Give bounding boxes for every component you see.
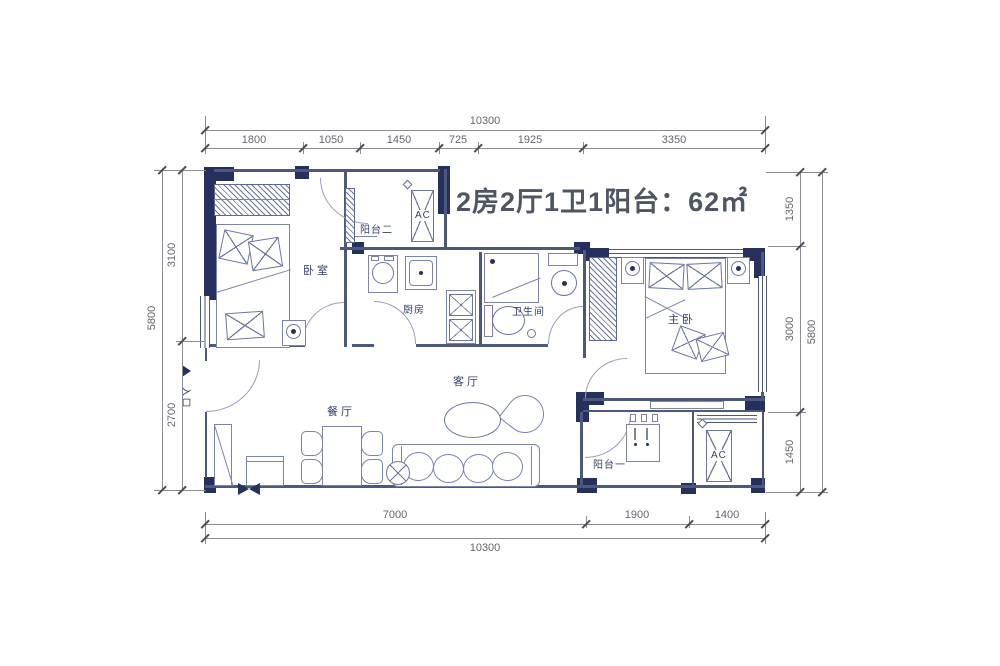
bathroom-shower-head xyxy=(490,259,495,264)
kitchen-washer-drum xyxy=(372,262,394,284)
wall-bathroom-right xyxy=(583,250,586,358)
dining-label: 餐厅 xyxy=(327,403,355,419)
dining-chair-3 xyxy=(361,431,383,456)
dim-line-top-segments xyxy=(205,148,765,149)
entrance-door-arc xyxy=(206,360,260,412)
dim-left-total: 5800 xyxy=(146,306,158,330)
ac-top-diamond-icon xyxy=(403,180,413,190)
floor-plan-canvas: 2房2厅1卫1阳台：62㎡ 入口 xyxy=(0,0,1000,666)
dim-line-bottom-segments xyxy=(205,524,765,525)
balcony2-side-vent xyxy=(345,188,355,243)
dim-right-3000: 3000 xyxy=(784,317,796,341)
living-floor-lamp xyxy=(386,461,410,485)
master-pillow-2 xyxy=(686,262,722,290)
ac-top-label: AC xyxy=(414,210,432,221)
balcony2-sill xyxy=(355,236,377,237)
dining-chair-2 xyxy=(301,459,323,484)
master-lamp-right-dot xyxy=(736,266,741,271)
dim-ext-bottom-right xyxy=(765,512,766,544)
bedroom-label: 卧室 xyxy=(303,262,331,278)
window-master-right xyxy=(758,276,767,392)
heater-mark-1 xyxy=(634,428,636,440)
dim-top-total: 10300 xyxy=(470,115,501,127)
master-door-arc xyxy=(585,358,627,398)
wall-kitchen-left xyxy=(344,250,347,347)
balcony1-label: 阳台一 xyxy=(593,456,626,471)
dining-chair-4 xyxy=(361,459,383,484)
living-armchair xyxy=(498,387,551,440)
living-label: 客厅 xyxy=(453,373,481,389)
bathroom-door-arc xyxy=(548,306,583,344)
wall-kitchen-bath-top xyxy=(340,247,580,250)
master-wardrobe xyxy=(589,257,617,341)
ac-bottom-label: AC xyxy=(710,450,728,461)
kitchen-label: 厨房 xyxy=(403,301,425,316)
heater-dot-2 xyxy=(646,443,649,446)
dim-line-bottom-total xyxy=(205,538,765,539)
kitchen-washer-tap-1 xyxy=(371,256,379,261)
dining-cabinet-line xyxy=(246,461,284,462)
dim-right-total: 5800 xyxy=(806,320,818,344)
dining-table xyxy=(322,426,362,486)
dim-ext-bottom-left xyxy=(205,512,206,544)
entrance-arrow-icon xyxy=(182,365,191,377)
bathroom-floor-drain xyxy=(527,329,536,338)
wall-left-lower xyxy=(205,412,207,478)
dining-chair-1 xyxy=(301,431,323,456)
dim-top-1050: 1050 xyxy=(319,134,343,146)
bedroom-foot-pillow xyxy=(225,311,265,341)
bedroom-lamp-dot xyxy=(291,329,296,334)
dim-top-3350: 3350 xyxy=(662,134,686,146)
dim-line-top-total xyxy=(205,130,765,131)
balcony1-water-heater xyxy=(626,424,660,462)
kitchen-washer-tap-2 xyxy=(384,256,394,261)
bedroom-wardrobe-divider xyxy=(214,199,290,200)
wall-bottom-balcony1 xyxy=(580,485,765,488)
balcony1-door-arc xyxy=(585,414,631,458)
bedroom-wardrobe xyxy=(214,184,290,216)
living-coffee-table xyxy=(444,402,501,438)
wall-zone-right xyxy=(444,169,447,249)
wall-kitchen-bottom-2 xyxy=(416,344,548,347)
bathroom-label: 卫生间 xyxy=(512,303,545,318)
dim-left-2700: 2700 xyxy=(166,403,178,427)
dim-bottom-1900: 1900 xyxy=(625,509,649,521)
dim-bottom-1400: 1400 xyxy=(715,509,739,521)
wall-kitchen-bottom-1 xyxy=(352,344,374,347)
wall-top-bedroom xyxy=(214,169,440,172)
wall-top-column-1 xyxy=(295,166,309,179)
heater-mark-2 xyxy=(646,428,648,440)
dim-bottom-total: 10300 xyxy=(470,542,501,554)
wall-platform-right xyxy=(762,412,764,487)
dim-line-left-segments xyxy=(182,170,183,490)
wall-balcony1-top xyxy=(583,410,763,412)
master-label: 主卧 xyxy=(668,311,696,327)
master-lamp-left-dot xyxy=(630,266,635,271)
threshold-bowtie-right xyxy=(249,483,260,495)
living-sofa-armrest-right xyxy=(531,446,532,485)
balcony2-door-arc xyxy=(320,178,368,224)
dim-line-left-total xyxy=(162,170,163,490)
master-desk xyxy=(650,401,724,409)
dim-top-725: 725 xyxy=(449,134,467,146)
kitchen-burner-2 xyxy=(449,319,473,341)
dim-bottom-7000: 7000 xyxy=(383,509,407,521)
dim-left-3100: 3100 xyxy=(166,243,178,267)
wall-kitchen-bath-divider xyxy=(479,252,482,345)
dim-line-right-total xyxy=(822,172,823,492)
bedroom-door-arc xyxy=(302,302,344,344)
bathroom-sink-drain xyxy=(562,281,567,286)
balcony2-label: 阳台二 xyxy=(360,221,393,236)
dim-top-1800: 1800 xyxy=(242,134,266,146)
dim-line-right-segments xyxy=(800,172,801,492)
wall-living-balcony1-divider xyxy=(580,412,583,487)
wall-balcony1-platform-divider xyxy=(692,412,694,487)
threshold-bowtie-left xyxy=(238,483,249,495)
dim-top-1450: 1450 xyxy=(387,134,411,146)
kitchen-burner-1 xyxy=(449,294,473,316)
plan-title: 2房2厅1卫1阳台：62㎡ xyxy=(456,180,748,219)
heater-dot-1 xyxy=(634,443,637,446)
dim-right-1350: 1350 xyxy=(784,197,796,221)
balcony1-tap-2 xyxy=(641,414,647,422)
balcony1-tap-1 xyxy=(630,414,636,422)
kitchen-sink-drain xyxy=(419,271,423,275)
bathroom-sink-counter xyxy=(548,253,578,266)
bedroom-pillow-2 xyxy=(248,237,283,271)
balcony1-tap-3 xyxy=(652,414,658,422)
master-pillow-1 xyxy=(648,262,684,290)
dim-right-1450: 1450 xyxy=(784,440,796,464)
dim-top-1925: 1925 xyxy=(518,134,542,146)
